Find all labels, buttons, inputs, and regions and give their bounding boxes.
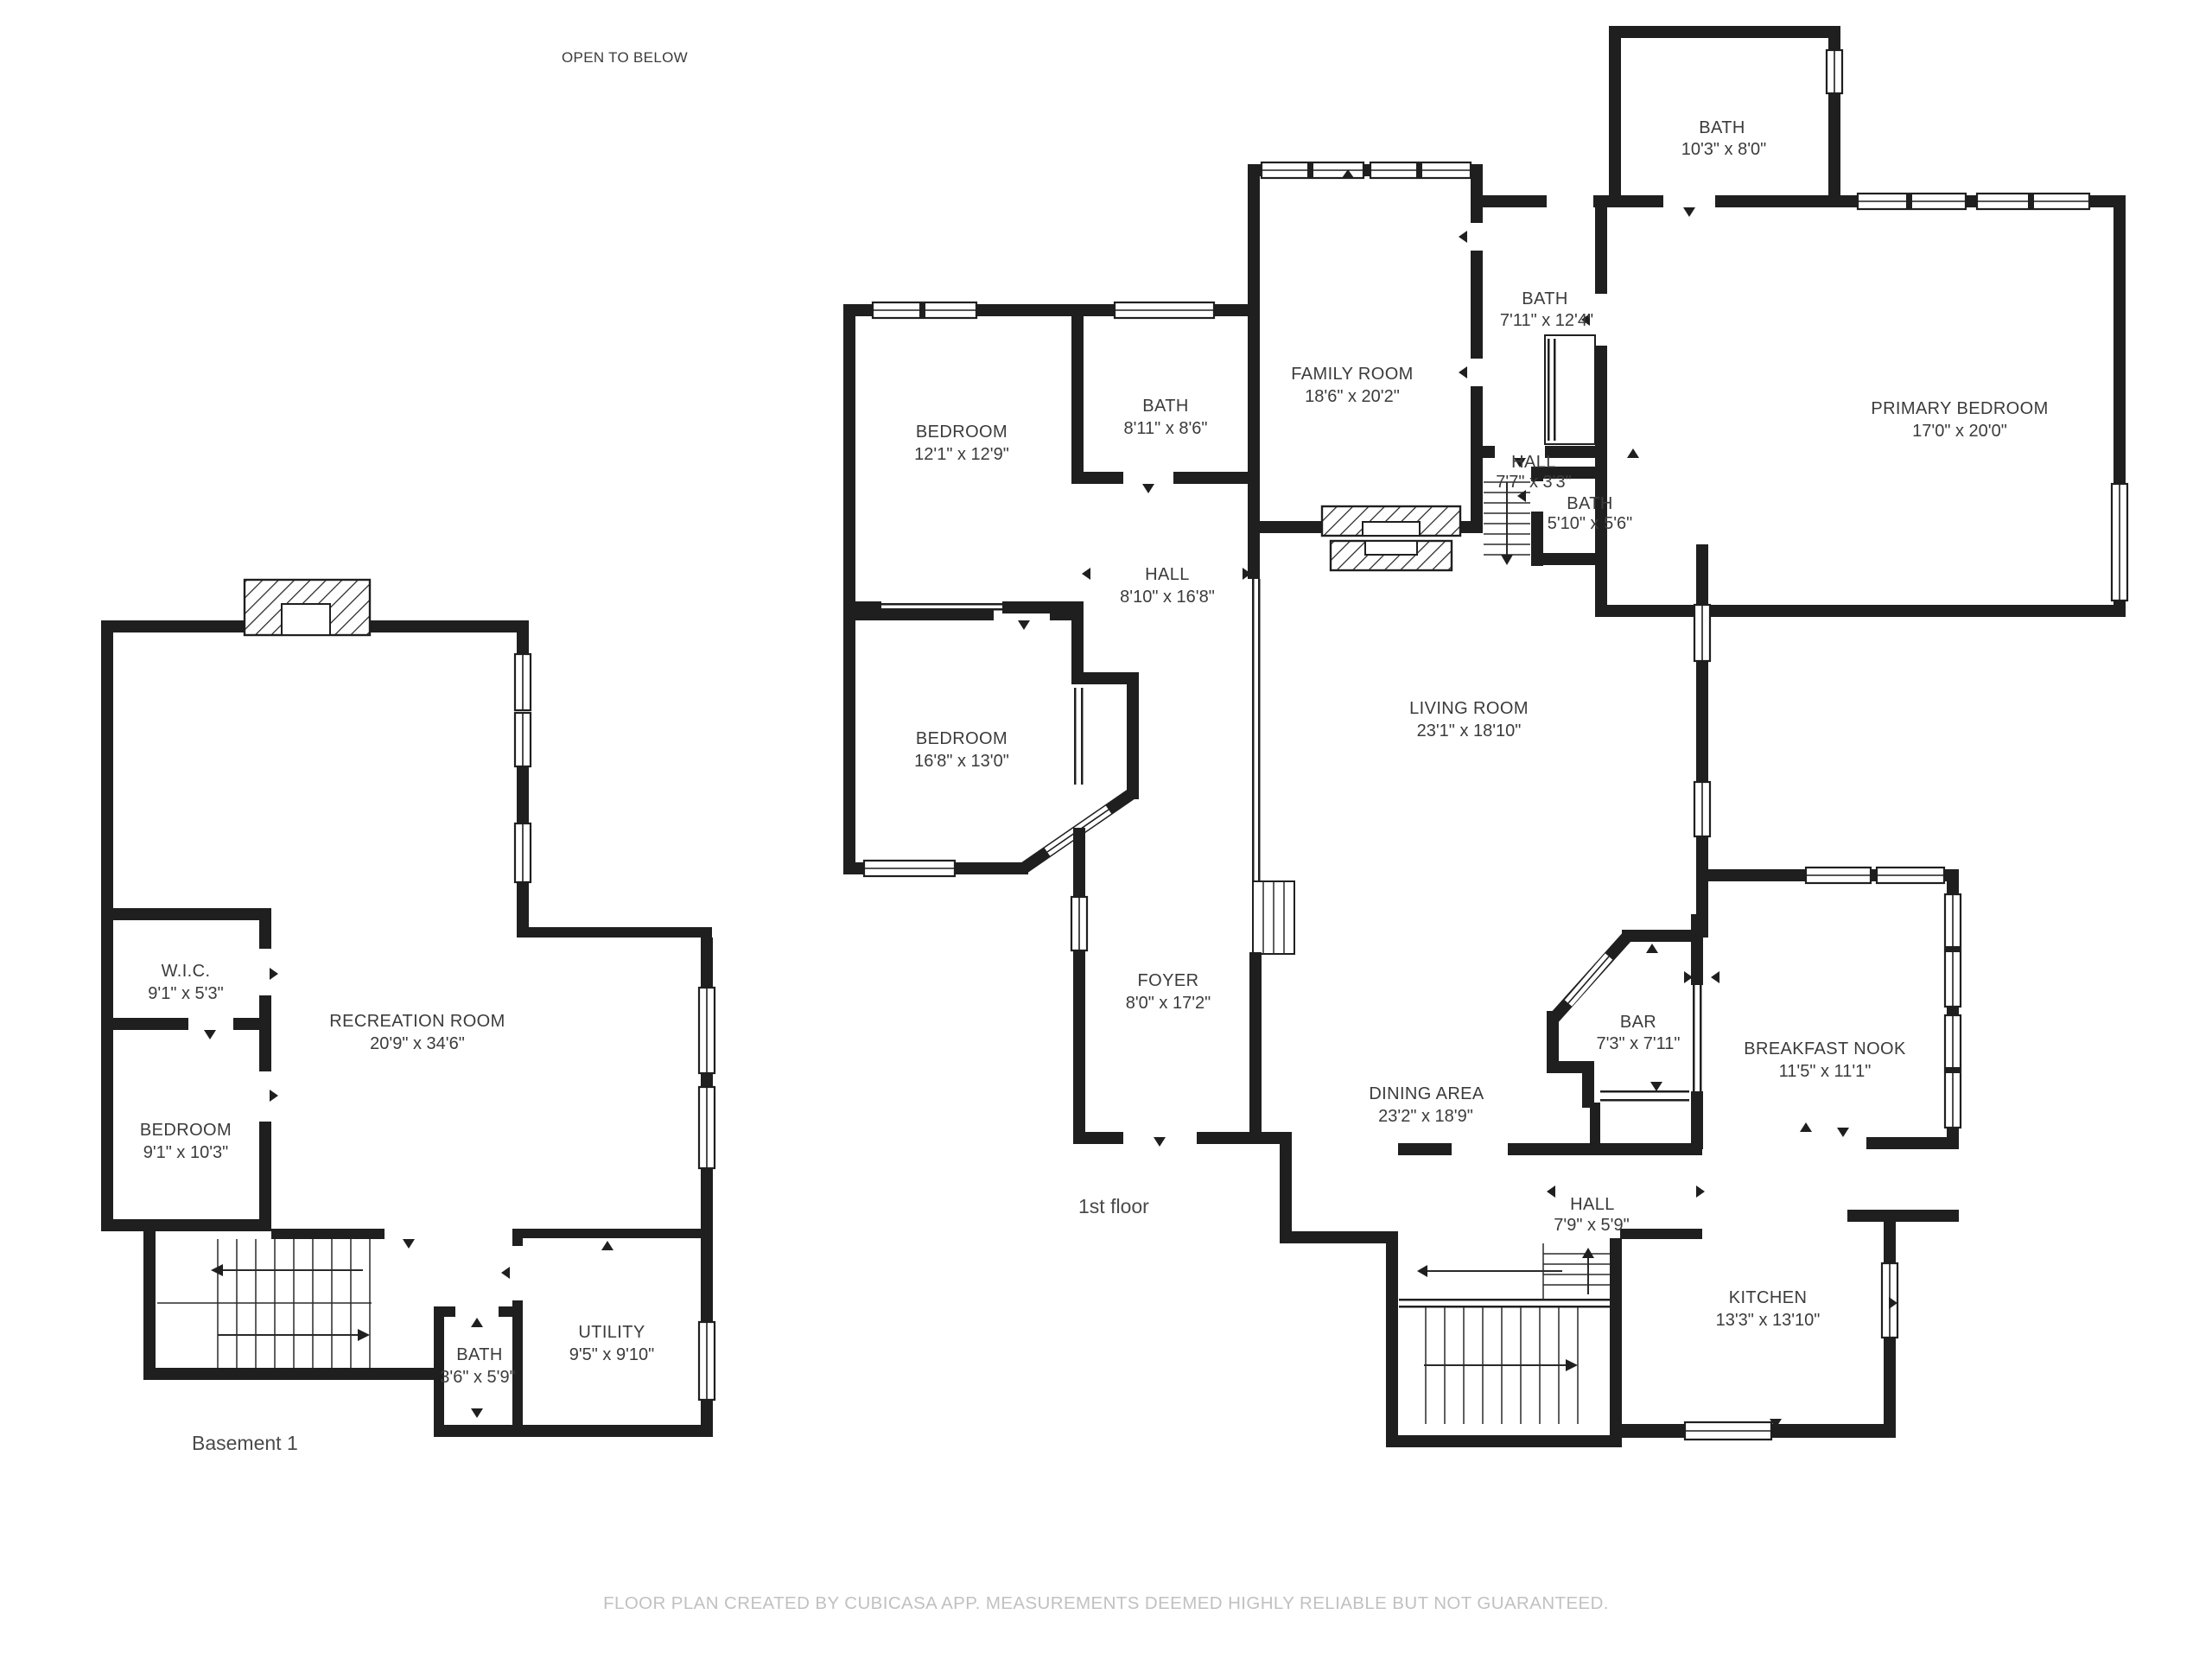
room-label-nook: BREAKFAST NOOK [1744, 1039, 1906, 1058]
room-dims-bath-510: 5'10" x 5'6" [1548, 514, 1633, 533]
room-dims-bath-top: 10'3" x 8'0" [1681, 140, 1767, 159]
room-dims-bsmt-bedroom: 9'1" x 10'3" [143, 1143, 229, 1162]
room-dims-bedroom2: 16'8" x 13'0" [914, 752, 1009, 771]
room-label-bedroom2: BEDROOM [916, 729, 1007, 748]
disclaimer-text: FLOOR PLAN CREATED BY CUBICASA APP. MEAS… [603, 1593, 1609, 1613]
room-dims-bsmt-utility: 9'5" x 9'10" [569, 1345, 655, 1364]
room-dims-bath-711: 7'11" x 12'4" [1500, 311, 1593, 330]
room-label-bsmt-wic: W.I.C. [162, 962, 211, 981]
room-dims-bar: 7'3" x 7'11" [1596, 1034, 1680, 1053]
room-label-bsmt-bath: BATH [456, 1345, 502, 1364]
room-label-living: LIVING ROOM [1409, 699, 1529, 718]
room-label-hall-upper: HALL [1145, 565, 1190, 584]
room-dims-primary: 17'0" x 20'0" [1912, 422, 2007, 441]
main-staircase [1399, 1243, 1610, 1424]
open-to-below-label: OPEN TO BELOW [562, 49, 688, 66]
room-dims-hall-77: 7'7" x 3'3" [1496, 473, 1571, 492]
room-label-bar: BAR [1620, 1013, 1656, 1032]
room-label-bsmt-rec: RECREATION ROOM [329, 1012, 505, 1031]
room-dims-bedroom1: 12'1" x 12'9" [914, 445, 1009, 464]
room-dims-dining: 23'2" x 18'9" [1378, 1107, 1473, 1126]
room-label-foyer: FOYER [1138, 971, 1199, 990]
room-label-bath-711: BATH [1522, 289, 1567, 308]
room-label-bath-510: BATH [1567, 494, 1612, 513]
room-label-primary: PRIMARY BEDROOM [1871, 399, 2048, 418]
room-dims-living: 23'1" x 18'10" [1417, 721, 1522, 741]
basement-plan [101, 580, 715, 1437]
room-label-dining: DINING AREA [1369, 1084, 1484, 1103]
room-dims-nook: 11'5" x 11'1" [1779, 1062, 1872, 1081]
room-dims-family: 18'6" x 20'2" [1305, 387, 1400, 406]
room-dims-foyer: 8'0" x 17'2" [1126, 994, 1211, 1013]
room-label-hall-77: HALL [1511, 453, 1556, 472]
room-label-bedroom1: BEDROOM [916, 423, 1007, 442]
room-dims-bath-ul: 8'11" x 8'6" [1123, 419, 1207, 438]
double-fireplace [1322, 506, 1460, 570]
basement-windows [515, 654, 715, 1400]
room-label-family: FAMILY ROOM [1291, 365, 1413, 384]
room-label-bsmt-bedroom: BEDROOM [140, 1121, 232, 1140]
room-dims-hall-upper: 8'10" x 16'8" [1120, 588, 1215, 607]
room-dims-bsmt-wic: 9'1" x 5'3" [148, 984, 223, 1003]
room-label-kitchen: KITCHEN [1729, 1288, 1808, 1307]
room-label-hall-79: HALL [1570, 1195, 1615, 1214]
floor-plan-drawing: OPEN TO BELOW W.I.C. 9'1" x 5'3" BEDROOM… [0, 0, 2212, 1659]
room-label-bath-top: BATH [1699, 118, 1745, 137]
room-label-bath-ul: BATH [1142, 397, 1188, 416]
room-dims-bsmt-rec: 20'9" x 34'6" [370, 1034, 465, 1053]
room-dims-hall-79: 7'9" x 5'9" [1554, 1216, 1629, 1235]
floor-label-first: 1st floor [1078, 1195, 1149, 1217]
floor-label-basement: Basement 1 [192, 1432, 298, 1454]
first-floor-windows [864, 50, 2127, 1440]
floor-plan-page: OPEN TO BELOW W.I.C. 9'1" x 5'3" BEDROOM… [0, 0, 2212, 1659]
room-label-bsmt-utility: UTILITY [578, 1323, 645, 1342]
room-dims-bsmt-bath: 3'6" x 5'9" [440, 1368, 515, 1387]
room-dims-kitchen: 13'3" x 13'10" [1716, 1311, 1821, 1330]
basement-staircase [157, 1239, 372, 1368]
foyer-steps [1253, 881, 1294, 954]
first-floor-door-arrow-icons [1018, 169, 1897, 1428]
basement-chimney [245, 580, 370, 635]
